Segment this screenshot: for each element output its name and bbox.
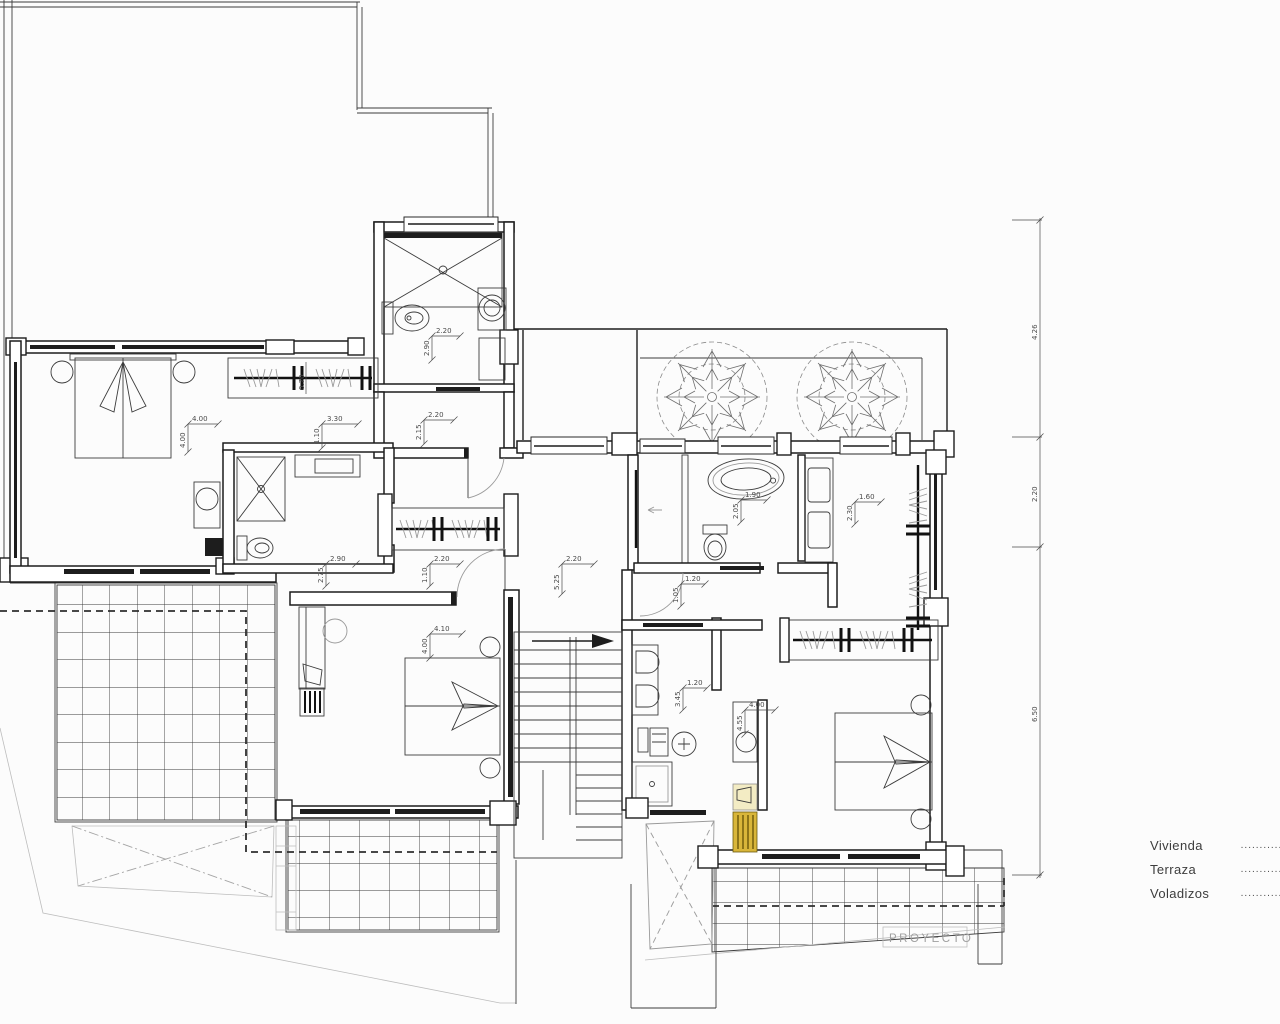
svg-text:1.20: 1.20 — [687, 679, 703, 687]
svg-text:0.70: 0.70 — [298, 374, 306, 390]
stair-direction-arrow — [592, 634, 614, 648]
svg-text:4.26: 4.26 — [1031, 324, 1039, 340]
legend-item-terraza: Terraza ............ — [1150, 858, 1280, 882]
terrace-left — [10, 583, 277, 822]
svg-text:1.10: 1.10 — [313, 428, 321, 444]
svg-text:4.00: 4.00 — [749, 701, 765, 709]
svg-text:1.10: 1.10 — [421, 567, 429, 583]
bathroom-top — [374, 217, 518, 392]
legend-item-vivienda: Vivienda ............ — [1150, 834, 1280, 858]
svg-text:2.30: 2.30 — [846, 505, 854, 521]
double-sink — [632, 645, 659, 715]
legend-leader-dots: ............ — [1241, 858, 1280, 882]
svg-text:1.05: 1.05 — [672, 587, 680, 603]
legend-item-voladizos: Voladizos ............ — [1150, 882, 1280, 906]
staircase — [514, 632, 622, 858]
skylight-void — [646, 821, 714, 949]
dimension-chain: 4.26 2.20 6.50 — [1012, 217, 1044, 879]
svg-text:6.50: 6.50 — [1031, 706, 1039, 722]
svg-text:1.90: 1.90 — [745, 491, 761, 499]
bathroom-lower — [632, 645, 757, 852]
bed-double — [835, 695, 932, 829]
bedroom-middle — [276, 549, 706, 825]
tree-symbol — [657, 342, 767, 452]
shower-tray — [384, 233, 502, 307]
bed-double — [405, 637, 500, 778]
svg-text:4.55: 4.55 — [736, 715, 744, 731]
desk — [299, 607, 347, 689]
floor-plan-page: 2.20 2.90 2.20 2.15 4.00 4.00 3.30 1.10 … — [0, 0, 1280, 1024]
corridor-wardrobe — [378, 494, 518, 556]
bathroom-middle — [194, 443, 394, 573]
legend-leader-dots: ............ — [1241, 882, 1280, 906]
svg-text:2.20: 2.20 — [566, 555, 582, 563]
tree-symbol — [797, 342, 907, 452]
legend-label: Vivienda — [1150, 834, 1203, 858]
svg-text:1.60: 1.60 — [859, 493, 875, 501]
pergola — [72, 826, 296, 930]
arrow-symbol — [648, 507, 662, 513]
balcony-middle — [286, 818, 499, 932]
door-arc — [457, 549, 505, 597]
svg-text:3.30: 3.30 — [327, 415, 343, 423]
door-arc — [468, 458, 504, 498]
svg-text:2.20: 2.20 — [428, 411, 444, 419]
toilet — [638, 728, 668, 756]
svg-text:2.20: 2.20 — [436, 327, 452, 335]
toilet — [703, 525, 727, 560]
terrace-top — [513, 329, 947, 452]
svg-text:4.00: 4.00 — [179, 432, 187, 448]
shower-head-unit — [733, 784, 757, 810]
bidet — [672, 732, 696, 756]
svg-text:4.00: 4.00 — [192, 415, 208, 423]
towel-radiator — [733, 812, 757, 852]
svg-text:4.00: 4.00 — [421, 638, 429, 654]
bedroom-left — [6, 338, 378, 582]
legend-label: Terraza — [1150, 858, 1196, 882]
svg-text:2.20: 2.20 — [434, 555, 450, 563]
toilet — [237, 536, 273, 560]
bed-double — [51, 354, 195, 458]
watermark-text: PROYECTO — [889, 933, 973, 945]
svg-text:2.20: 2.20 — [1031, 486, 1039, 502]
suite-window-wall — [517, 431, 954, 457]
radiator — [300, 688, 324, 716]
svg-text:1.20: 1.20 — [685, 575, 701, 583]
legend-label: Voladizos — [1150, 882, 1209, 906]
svg-text:2.15: 2.15 — [415, 424, 423, 440]
svg-text:5.25: 5.25 — [553, 574, 561, 590]
hall-top — [374, 392, 523, 498]
floor-plan-canvas: 2.20 2.90 2.20 2.15 4.00 4.00 3.30 1.10 … — [0, 0, 1280, 1024]
svg-text:2.90: 2.90 — [330, 555, 346, 563]
shower-tray — [237, 457, 285, 521]
legend: Vivienda ............ Terraza ..........… — [1150, 834, 1280, 906]
svg-text:4.10: 4.10 — [434, 625, 450, 633]
svg-text:2.90: 2.90 — [423, 340, 431, 356]
washbasin — [194, 482, 223, 556]
svg-text:3.45: 3.45 — [674, 691, 682, 707]
svg-text:2.75: 2.75 — [317, 567, 325, 583]
dimensions: 2.20 2.90 2.20 2.15 4.00 4.00 3.30 1.10 … — [179, 327, 885, 738]
vanity-counter — [295, 455, 360, 477]
legend-leader-dots: ............ — [1241, 834, 1280, 858]
svg-text:2.05: 2.05 — [732, 503, 740, 519]
vanity-double — [805, 458, 833, 562]
